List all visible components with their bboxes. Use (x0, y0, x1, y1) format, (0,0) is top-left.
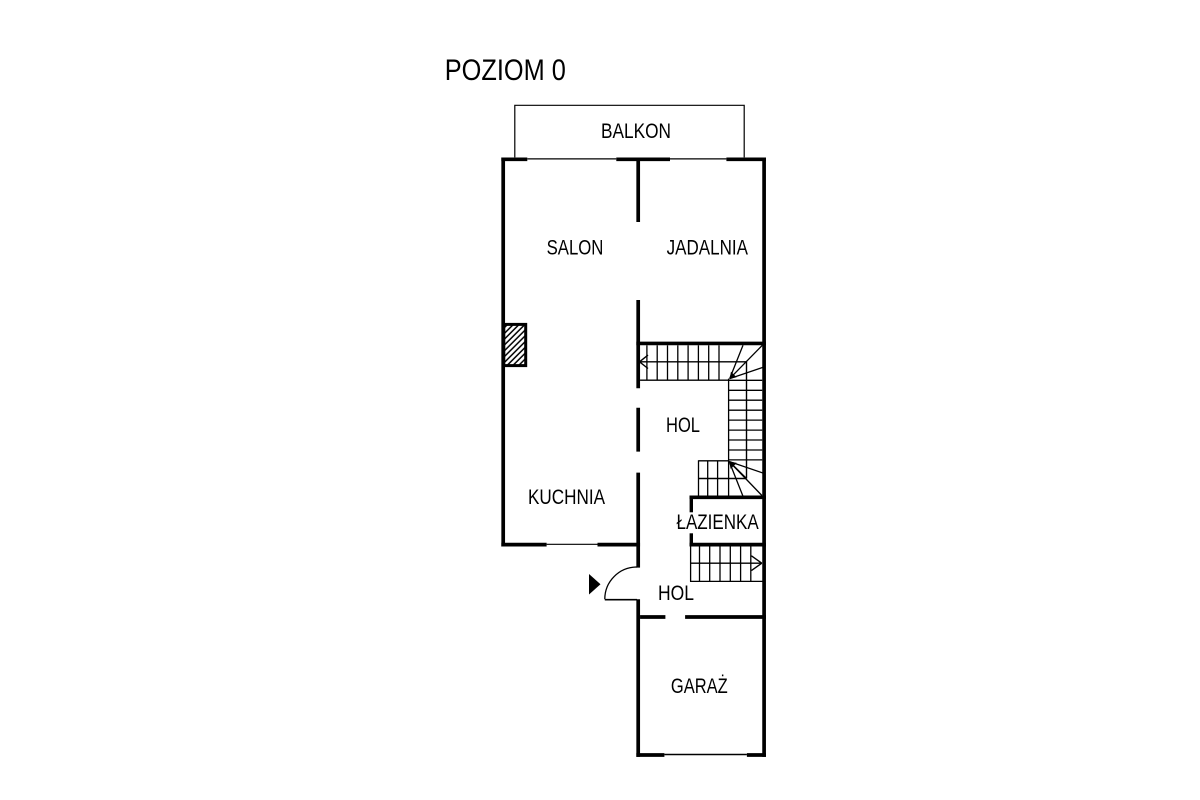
svg-text:HOL: HOL (666, 413, 700, 437)
svg-text:GARAŻ: GARAŻ (671, 674, 728, 698)
svg-text:SALON: SALON (547, 235, 604, 259)
svg-text:POZIOM 0: POZIOM 0 (445, 54, 566, 87)
svg-text:BALKON: BALKON (601, 119, 671, 143)
svg-text:HOL: HOL (658, 581, 694, 605)
svg-text:ŁAZIENKA: ŁAZIENKA (677, 510, 760, 534)
svg-text:KUCHNIA: KUCHNIA (528, 485, 606, 509)
svg-text:JADALNIA: JADALNIA (667, 235, 749, 259)
